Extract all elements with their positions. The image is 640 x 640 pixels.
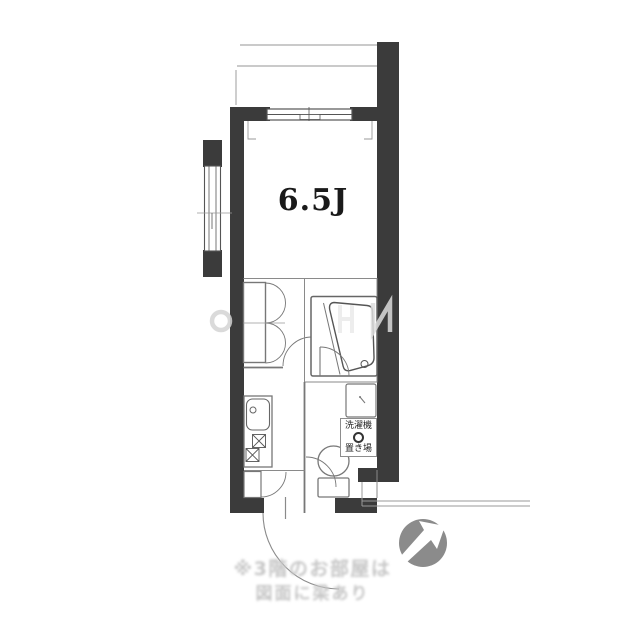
corner-steps [248,121,372,139]
room-size-label: 6.5J [263,183,363,218]
closet-icon [244,283,286,364]
laundry-label-line2: 置き場 [345,444,372,454]
footnote-line2: 図面に梁あり [205,583,420,607]
exterior-lines [362,482,530,506]
sliding-window-icon [267,107,352,121]
plan-linework [0,0,640,640]
laundry-pan-icon [353,432,364,443]
laundry-label-line1: 洗濯機 [345,421,372,431]
balcony [236,45,377,105]
side-window-icon [197,166,232,251]
footnote-line1: ※3階のお部屋は [205,556,420,583]
shoe-cabinet [244,471,305,499]
footnote-caption: ※3階のお部屋は 図面に梁あり [205,556,420,606]
washbasin-icon [346,384,376,417]
laundry-space-label: 洗濯機 置き場 [340,418,377,457]
kitchen-counter [244,396,272,467]
cabinet-door-arc [261,472,286,497]
kitchen-sink-icon [247,399,270,430]
floorplan-canvas: 6.5J 洗濯機 置き場 ※3階のお部屋は 図面に梁あり [0,0,640,640]
